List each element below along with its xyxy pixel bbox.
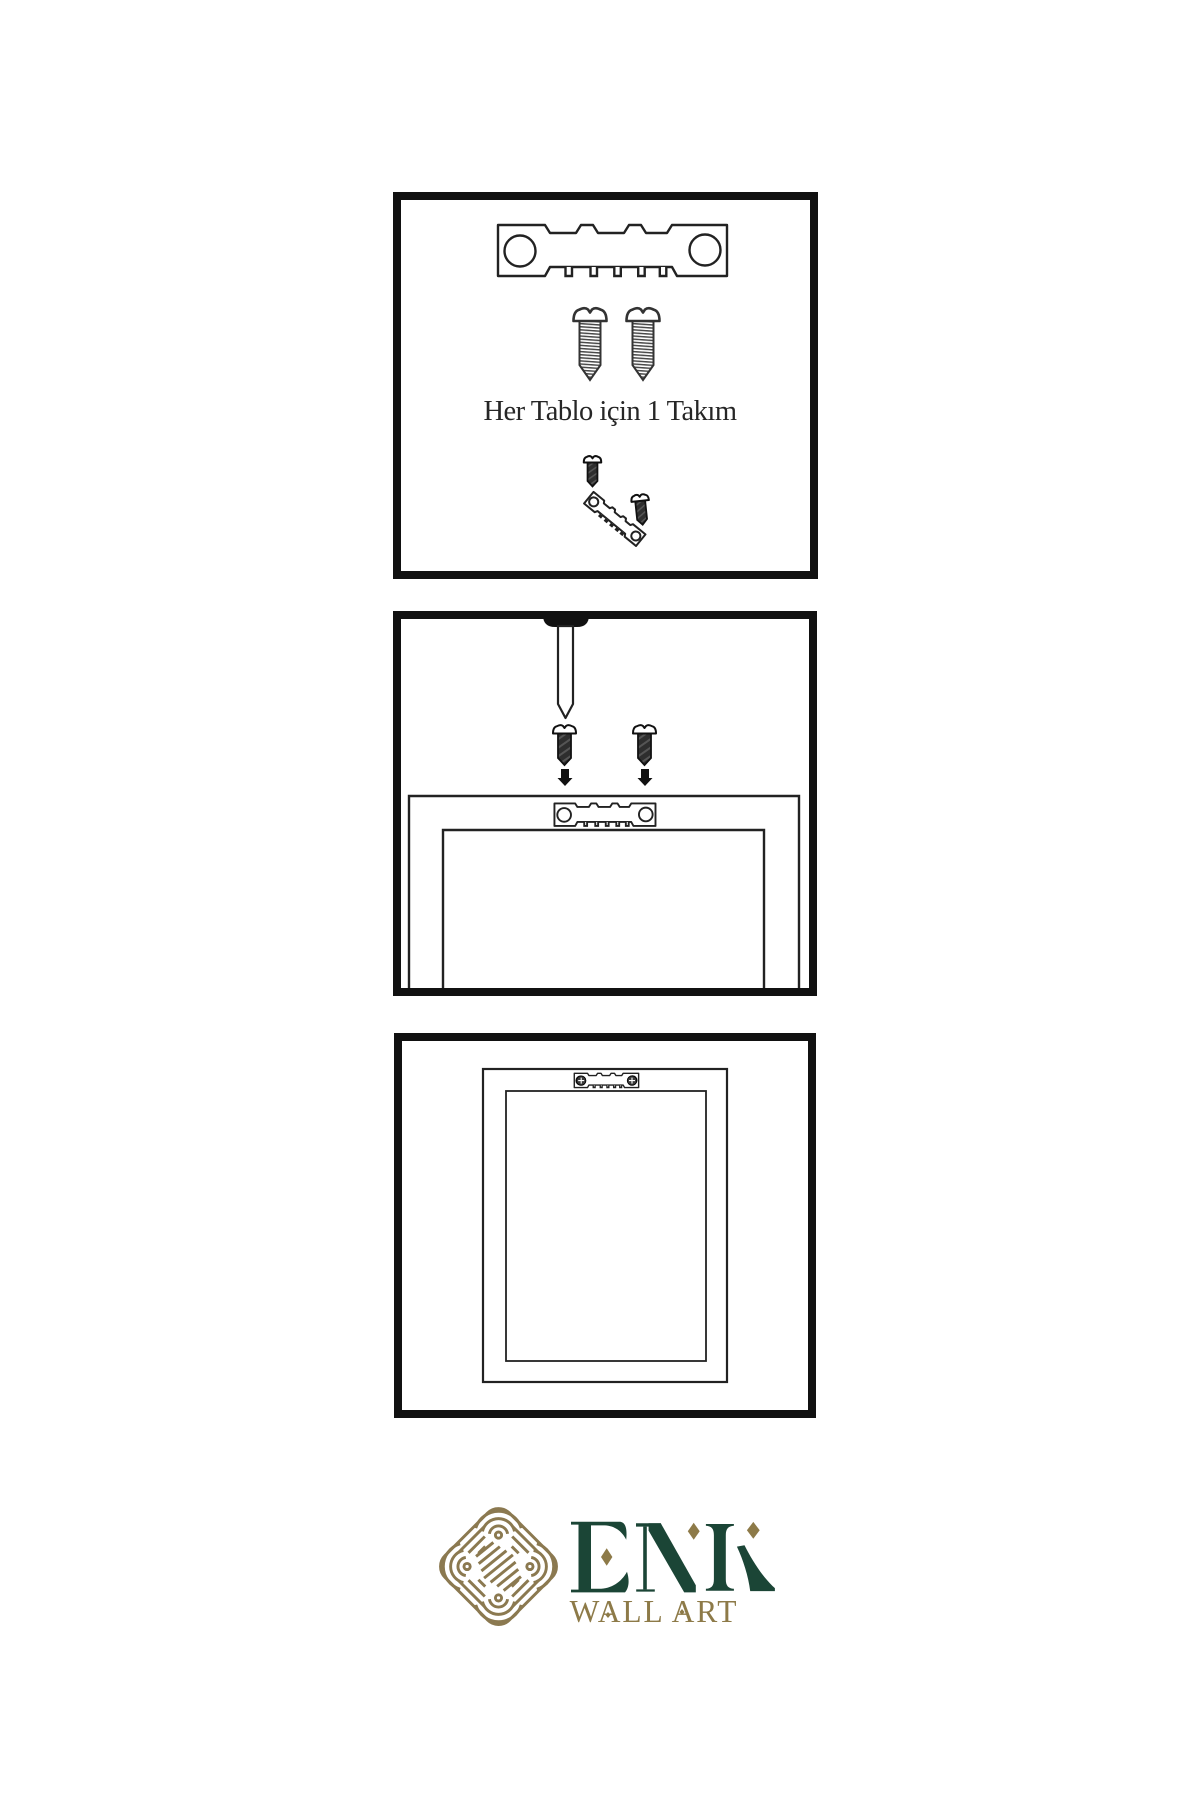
svg-text:Her Tablo için 1 Takım: Her Tablo için 1 Takım bbox=[483, 396, 736, 427]
svg-text:WALL ART: WALL ART bbox=[570, 1594, 739, 1629]
